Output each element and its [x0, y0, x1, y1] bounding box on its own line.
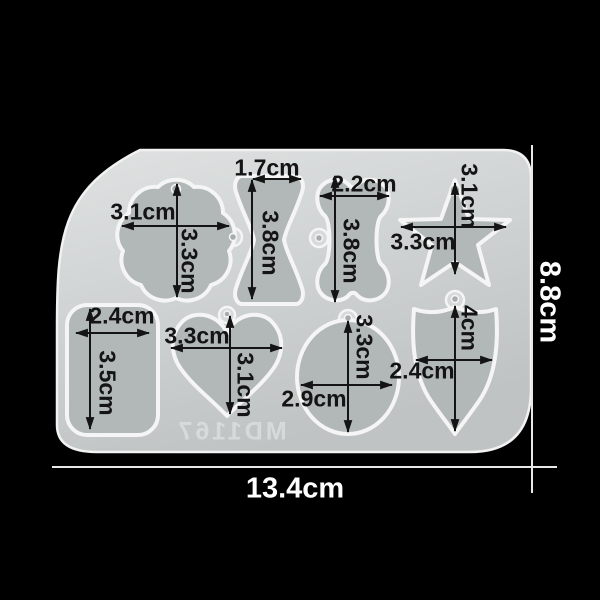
- cupcake-width-label: 3.1cm: [110, 201, 175, 224]
- circle-height-label: 3.3cm: [353, 314, 376, 379]
- rectangle-height-label: 3.5cm: [96, 350, 119, 415]
- circle-width-label: 2.9cm: [281, 388, 346, 411]
- mold-code-embossed: MD1167: [175, 420, 286, 445]
- rectangle-width-label: 2.4cm: [89, 305, 154, 328]
- mold-illustration: [0, 0, 600, 600]
- bowtie-width-label: 1.7cm: [234, 157, 299, 180]
- overall-height-label: 8.8cm: [535, 261, 564, 343]
- overall-width-label: 13.4cm: [246, 475, 344, 504]
- shield-width-label: 2.4cm: [389, 360, 454, 383]
- heart-height-label: 3.1cm: [234, 352, 257, 417]
- star-width-label: 3.3cm: [390, 231, 455, 254]
- star-height-label: 3.1cm: [458, 163, 481, 228]
- bowtie-height-label: 3.8cm: [259, 210, 282, 275]
- product-image: 3.1cm 3.3cm 1.7cm 3.8cm 2.2cm 3.8cm 3.3c…: [0, 0, 600, 600]
- shield-height-label: 4cm: [458, 305, 481, 351]
- cupcake-height-label: 3.3cm: [178, 228, 201, 293]
- heart-width-label: 3.3cm: [164, 325, 229, 348]
- bone-height-label: 3.8cm: [340, 218, 363, 283]
- bone-width-label: 2.2cm: [331, 173, 396, 196]
